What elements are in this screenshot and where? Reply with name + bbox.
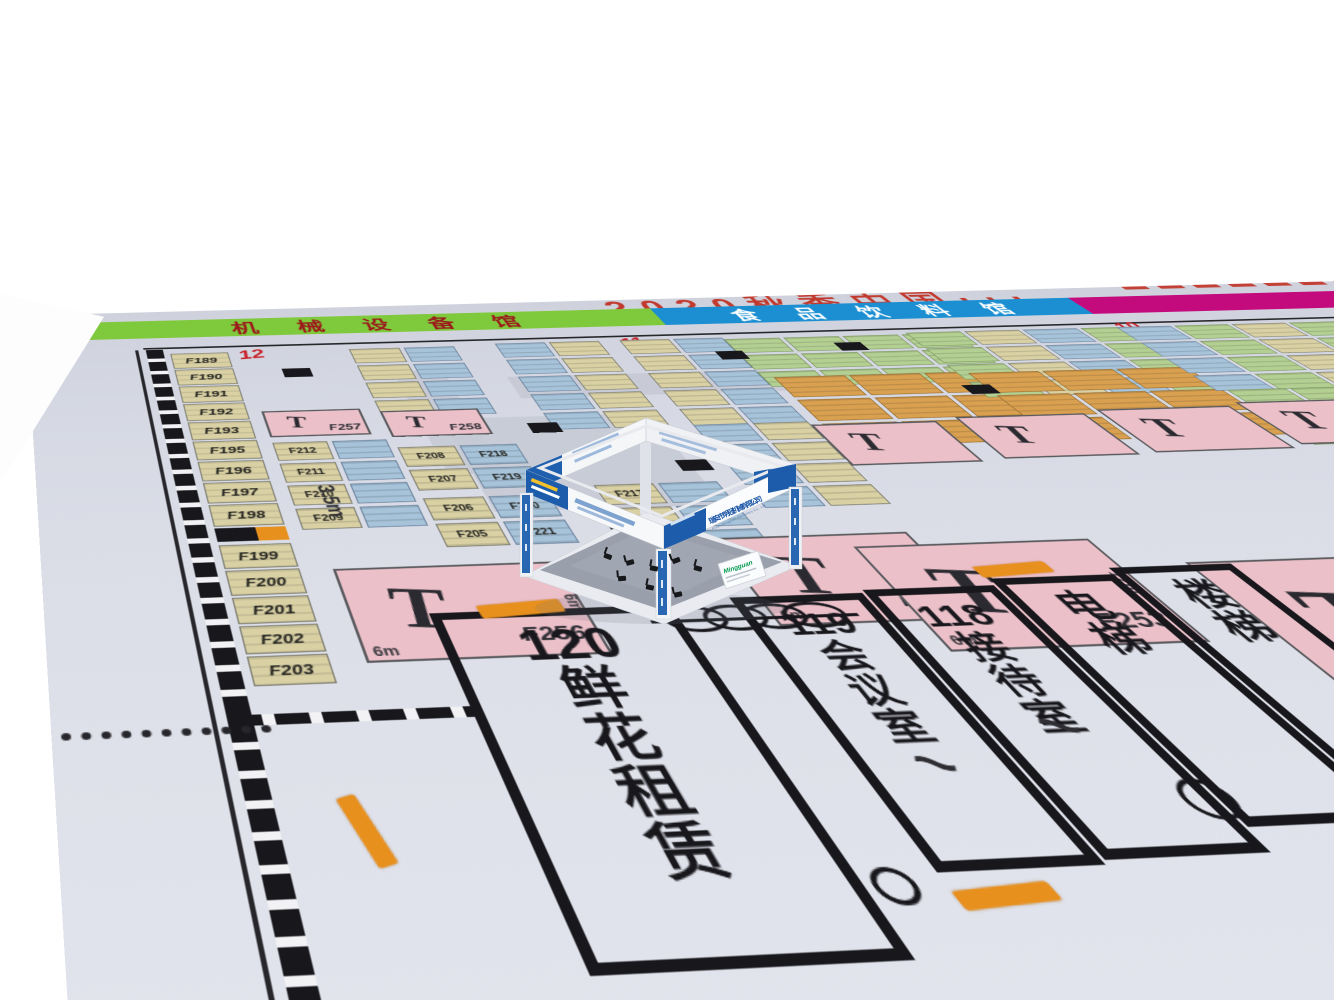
booth-cell: F206	[423, 496, 496, 520]
booth-cell	[812, 484, 891, 506]
pillar-mark	[282, 368, 314, 377]
t-booth-glyph: T	[1133, 414, 1199, 441]
room-name-char: 楼	[1165, 578, 1248, 611]
room-number: 118	[908, 601, 1005, 633]
room-name-char: 梯	[1080, 622, 1164, 658]
booth-cell: F201	[232, 595, 317, 624]
t-booth: TF258	[379, 408, 493, 437]
door-mark	[951, 881, 1063, 911]
booth-cell: F212	[272, 441, 334, 461]
booth-cell	[340, 460, 405, 481]
room-name-char: 赁	[637, 821, 743, 887]
booth-cell	[506, 358, 568, 374]
floor-plan: 2020秋季中国···机械设备馆食品饮料馆F189F190F191F192F19…	[25, 263, 1334, 1000]
booth-cell: F198	[208, 503, 284, 527]
t-booth-glyph: T	[843, 429, 896, 455]
booth-cell	[549, 341, 610, 356]
t-booth-dimension: 6m	[371, 644, 403, 660]
t-booth-label: F257	[327, 422, 363, 432]
booth-cell	[350, 482, 417, 504]
booth-cell	[365, 381, 427, 398]
booth-cell: F207	[409, 468, 479, 491]
booth-cell	[518, 375, 582, 392]
booth-cell: F189	[170, 352, 233, 368]
booth-cell: F195	[192, 440, 263, 461]
booth-cell	[413, 363, 474, 379]
booth-cell: F190	[174, 368, 238, 385]
wall-pillar	[214, 526, 289, 542]
booth-cell: F208	[397, 446, 465, 467]
room-name-char: 接	[949, 631, 1024, 666]
t-booth-glyph: T	[989, 422, 1047, 448]
booth-cell	[619, 339, 681, 354]
booth-cell	[561, 357, 624, 373]
room-name-char: 鲜	[552, 665, 640, 715]
hall-strip-0: 机械设备馆	[86, 308, 666, 340]
room-name-char: 花	[578, 712, 671, 767]
booth-cell	[332, 439, 395, 459]
room-name-char: 议	[838, 673, 913, 711]
booth-column-right	[789, 487, 802, 569]
booth-3d-model: 瑞安市明冠机械有限公司 Ruian Mingguan Machinery Co.…	[510, 408, 810, 628]
room-name-char: 梯	[1204, 610, 1291, 645]
booth-cell: F211	[279, 462, 343, 483]
booth-cell	[495, 342, 556, 357]
booth-column-left	[520, 493, 533, 577]
booth-cell	[359, 505, 428, 528]
booth-cell: F193	[188, 421, 257, 441]
exhibition-floorplan-photo: 2020秋季中国···机械设备馆食品饮料馆F189F190F191F192F19…	[0, 0, 1334, 1000]
booth-cell	[633, 355, 697, 371]
t-booth-glyph: T	[1272, 407, 1334, 434]
booth-cell: F200	[225, 568, 308, 596]
booth-cell	[357, 364, 417, 380]
background-sky	[0, 0, 1334, 317]
booth-cell	[404, 346, 463, 361]
t-booth-glyph: T	[404, 414, 429, 431]
room-name-char: 电	[1045, 590, 1125, 624]
booth-column-front	[656, 549, 671, 619]
room-name-char: 待	[981, 664, 1060, 701]
booth-cell: F202	[239, 624, 327, 655]
t-booth-glyph: T	[285, 414, 308, 431]
booth-cell: F205	[435, 522, 511, 548]
booth-cell: F196	[197, 460, 269, 482]
room-name-char: 会	[811, 639, 883, 674]
room-number: 120	[510, 622, 632, 668]
door-mark	[335, 794, 399, 869]
room-name-char: 租	[606, 764, 705, 824]
booth-cell: F197	[203, 481, 277, 504]
booth-cell	[801, 352, 874, 368]
booth-cell: F192	[183, 402, 250, 421]
booth-cell: F203	[247, 654, 338, 687]
booth-cell: F191	[178, 385, 244, 403]
t-booth: TF257	[261, 409, 372, 438]
aisle-number: 12	[235, 347, 268, 363]
booth-cell: F199	[218, 543, 298, 569]
booth-cell	[349, 348, 408, 364]
booth-back-column	[640, 438, 651, 514]
lower-wall-segment	[226, 706, 479, 727]
t-booth-label: F258	[447, 422, 484, 432]
booth-cell	[423, 380, 485, 397]
